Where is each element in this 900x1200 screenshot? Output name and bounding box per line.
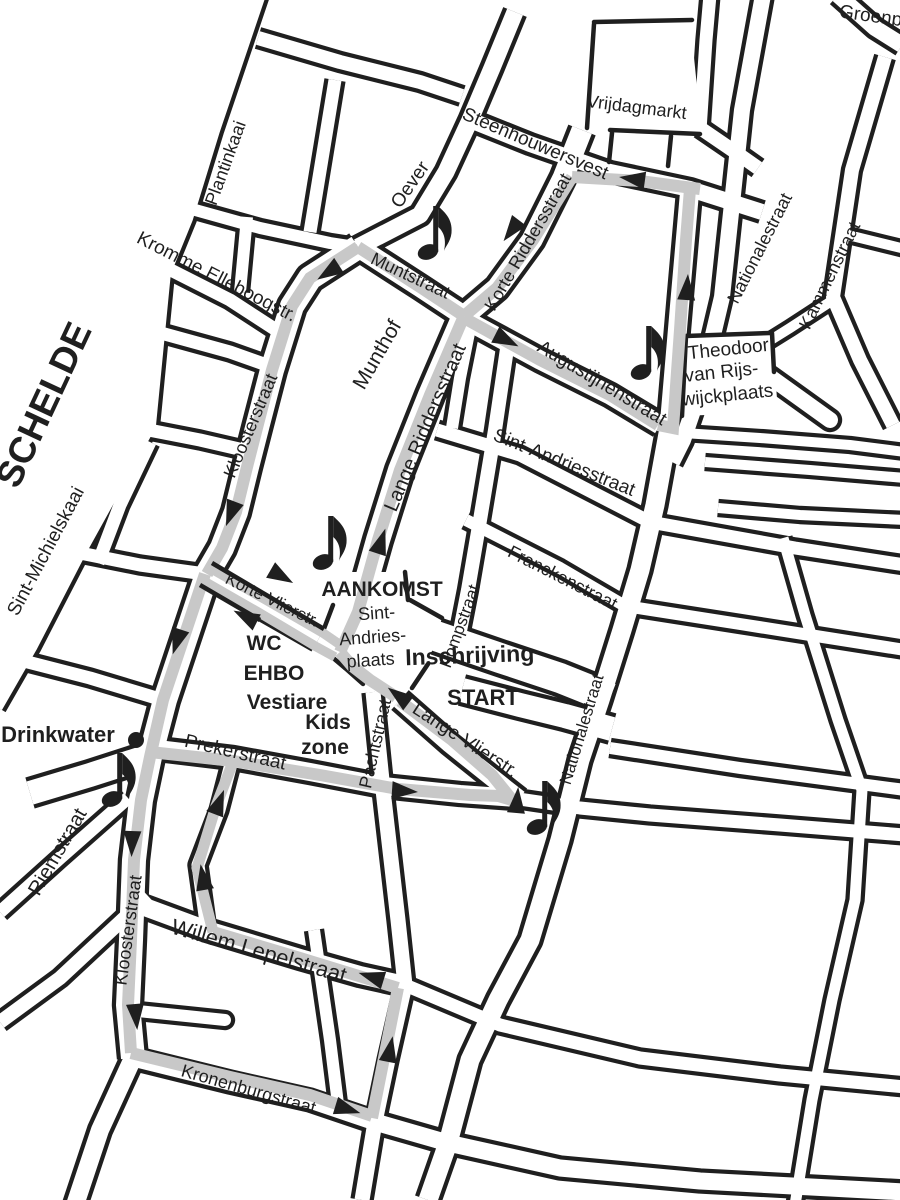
svg-text:AANKOMST: AANKOMST [321, 578, 442, 601]
svg-text:START: START [447, 685, 519, 710]
svg-text:EHBO: EHBO [244, 662, 305, 685]
svg-text:zone: zone [301, 736, 349, 759]
svg-text:Sint-: Sint- [357, 602, 395, 625]
svg-text:Drinkwater: Drinkwater [1, 722, 115, 747]
svg-text:Kids: Kids [305, 711, 351, 734]
svg-text:plaats: plaats [346, 648, 395, 671]
svg-text:WC: WC [247, 632, 282, 655]
svg-text:Inschrijving: Inschrijving [405, 640, 535, 670]
